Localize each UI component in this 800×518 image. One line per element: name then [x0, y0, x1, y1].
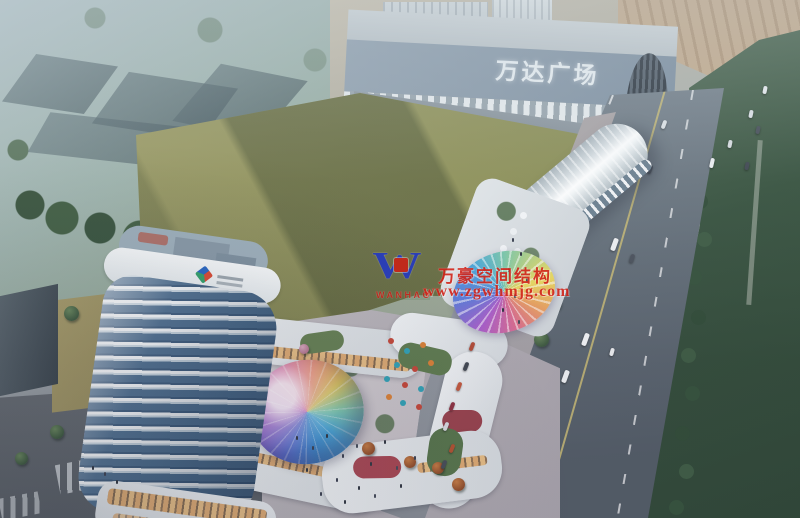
tower-logo-text-bars: [217, 275, 243, 282]
flowering-tree: [299, 344, 309, 354]
courtyard-umbrellas: [388, 338, 394, 344]
aerial-rendering: 万达广场: [0, 0, 800, 518]
tree: [50, 425, 64, 439]
roof-deck-detail: [137, 232, 168, 246]
tree: [15, 452, 28, 465]
terrace-umbrellas: [520, 212, 527, 219]
watermark-line2: www.zgwhmjg.com: [423, 283, 570, 301]
watermark-logo-badge-icon: [394, 258, 408, 272]
tower-shading: [74, 272, 281, 518]
tower-group: [72, 220, 298, 516]
red-feature-wall: [353, 456, 401, 479]
tree: [64, 306, 79, 321]
crosswalk-people: [92, 466, 94, 470]
tower-logo-icon: [195, 266, 213, 284]
terrace-people: [512, 238, 514, 242]
warehouse-building: [0, 284, 58, 396]
autumn-tree: [404, 456, 416, 468]
mall-sign: 万达广场: [495, 51, 601, 90]
autumn-tree: [362, 442, 375, 455]
plaza-people: [296, 436, 298, 440]
autumn-tree: [452, 478, 465, 491]
